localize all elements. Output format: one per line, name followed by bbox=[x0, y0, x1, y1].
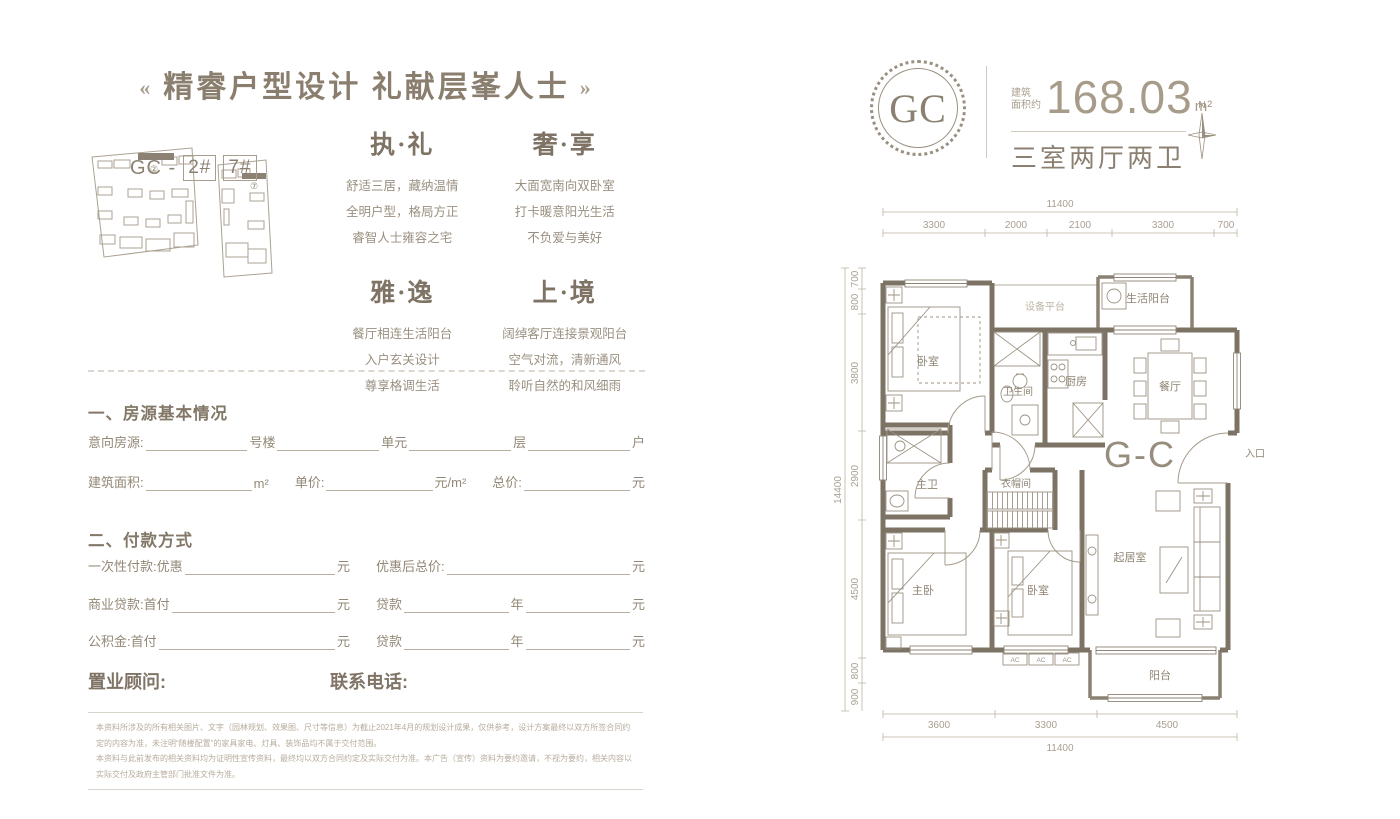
feature-line: 全明户型，格局方正 bbox=[321, 199, 484, 225]
room-label-kitchen: 厨房 bbox=[1065, 375, 1087, 388]
dim-left-total: 14400 bbox=[833, 476, 844, 504]
room-label-bedroom-bottom: 卧室 bbox=[1027, 583, 1049, 597]
layout-text: 三室两厅两卫 bbox=[1011, 138, 1185, 175]
payment-row-3: 公积金:首付元 贷款年元 bbox=[88, 631, 645, 650]
field-unit: 元/m² bbox=[435, 472, 467, 491]
field-label: 意向房源: bbox=[88, 432, 144, 451]
feature-grid: 执·礼 舒适三居，藏纳温情 全明户型，格局方正 睿智人士雍容之宅 奢·享 大面宽… bbox=[321, 125, 646, 399]
feature-title: 奢·享 bbox=[484, 125, 647, 161]
blank-field bbox=[159, 634, 335, 650]
disclaimer-line: 本资料所涉及的所有相关图片、文字（园林规划、效果图、尺寸等信息）为截止2021年… bbox=[96, 720, 635, 751]
feature-line: 聆听自然的和风细雨 bbox=[484, 373, 647, 399]
dim: 2900 bbox=[850, 464, 861, 487]
feature-title: 上·境 bbox=[484, 273, 647, 309]
dim-top-total: 11400 bbox=[1046, 199, 1074, 210]
blank-field bbox=[404, 597, 508, 613]
dim: 3600 bbox=[928, 720, 951, 731]
brochure-page: «精睿户型设计 礼献层峯人士» ② bbox=[0, 0, 1400, 819]
blank-field bbox=[528, 435, 630, 451]
field-label: 公积金:首付 bbox=[88, 631, 157, 650]
blank-field bbox=[526, 634, 630, 650]
dashed-separator bbox=[88, 370, 645, 372]
field-label: 贷款 bbox=[376, 631, 402, 650]
feature-yayi: 雅·逸 餐厅相连生活阳台 入户玄关设计 尊享格调生活 bbox=[321, 273, 484, 399]
consultant-label: 置业顾问: bbox=[88, 672, 166, 692]
compass-n-label: N bbox=[1182, 100, 1222, 111]
field-label: 贷款 bbox=[376, 594, 402, 613]
blank-field bbox=[277, 435, 379, 451]
room-label-closet: 衣帽间 bbox=[1001, 477, 1031, 490]
field-label: 优惠后总价: bbox=[376, 556, 445, 575]
siteplan2-tag: ⑦ bbox=[250, 181, 258, 191]
room-label-dining: 餐厅 bbox=[1159, 379, 1181, 393]
page-title-text: 精睿户型设计 礼献层峯人士 bbox=[163, 71, 570, 104]
doors bbox=[915, 396, 1228, 565]
dim: 3300 bbox=[1035, 720, 1058, 731]
room-label-equipment: 设备平台 bbox=[1025, 300, 1065, 313]
field-unit: 元 bbox=[337, 556, 350, 575]
area-underline bbox=[1011, 131, 1186, 132]
compass-icon bbox=[1182, 111, 1222, 161]
title-ornament-right-icon: » bbox=[570, 75, 604, 100]
field-unit: 元 bbox=[632, 556, 645, 575]
basic-info-heading: 一、房源基本情况 bbox=[88, 400, 228, 424]
dim: 3800 bbox=[850, 361, 861, 384]
area-label: 建筑 面积约 bbox=[1011, 88, 1041, 120]
field-unit: m² bbox=[254, 476, 269, 491]
feature-shangjing: 上·境 阔绰客厅连接景观阳台 空气对流，清新通风 聆听自然的和风细雨 bbox=[484, 273, 647, 399]
page-title: «精睿户型设计 礼献层峯人士» bbox=[88, 62, 645, 106]
blank-field bbox=[146, 475, 252, 491]
compass: N bbox=[1182, 100, 1222, 164]
blank-field bbox=[409, 435, 511, 451]
field-unit: 元 bbox=[632, 631, 645, 650]
field-unit: 元 bbox=[632, 472, 645, 491]
floorplan: 11400 3300 2000 2100 3300 700 14400 700 … bbox=[830, 195, 1290, 780]
feature-line: 睿智人士雍容之宅 bbox=[321, 225, 484, 251]
blank-field bbox=[526, 597, 630, 613]
entrance-label: 入口 bbox=[1245, 449, 1265, 460]
feature-line: 打卡暖意阳光生活 bbox=[484, 199, 647, 225]
ac-label: AC bbox=[1036, 657, 1045, 664]
feature-shexiang: 奢·享 大面宽南向双卧室 打卡暖意阳光生活 不负爱与美好 bbox=[484, 125, 647, 251]
blank-field bbox=[172, 597, 335, 613]
unit-badge: GC bbox=[870, 60, 966, 156]
field-label: 总价: bbox=[492, 472, 522, 491]
dim: 2100 bbox=[1069, 220, 1092, 231]
field-label: 商业贷款:首付 bbox=[88, 594, 170, 613]
basic-info-row-1: 意向房源: 号楼 单元 层 户 bbox=[88, 432, 645, 451]
ac-label: AC bbox=[1062, 657, 1071, 664]
unit-chip-2: 2# bbox=[183, 155, 216, 181]
blank-field bbox=[404, 634, 508, 650]
field-label: 单价: bbox=[295, 472, 325, 491]
payment-heading: 二、付款方式 bbox=[88, 527, 193, 551]
dim: 4500 bbox=[1156, 720, 1179, 731]
dim-bottom-total: 11400 bbox=[1046, 743, 1074, 754]
disclaimer-line: 本资料与此前发布的相关资料均为证明性宣传资料，最终均以双方合同约定及实际交付为准… bbox=[96, 751, 635, 782]
field-label: 单元 bbox=[381, 432, 407, 451]
unit-caption: GC - 2# 7# bbox=[130, 155, 257, 181]
payment-row-1: 一次性付款:优惠元 优惠后总价:元 bbox=[88, 556, 645, 575]
field-label: 一次性付款:优惠 bbox=[88, 556, 183, 575]
dim: 800 bbox=[850, 662, 861, 679]
feature-title: 雅·逸 bbox=[321, 273, 484, 309]
basic-info-row-2: 建筑面积: m² 单价: 元/m² 总价: 元 bbox=[88, 472, 645, 491]
blank-field bbox=[524, 475, 630, 491]
room-label-balcony: 阳台 bbox=[1149, 668, 1171, 682]
unit-badge-text: GC bbox=[878, 68, 958, 148]
blank-field bbox=[146, 435, 248, 451]
room-label-living: 起居室 bbox=[1114, 550, 1147, 564]
dim: 800 bbox=[850, 293, 861, 310]
dim: 2000 bbox=[1005, 220, 1028, 231]
dim: 3300 bbox=[923, 220, 946, 231]
area-value: 168.03 bbox=[1046, 74, 1193, 120]
payment-row-2: 商业贷款:首付元 贷款年元 bbox=[88, 594, 645, 613]
unit-code-label: G-C bbox=[1104, 434, 1176, 475]
field-label: 年 bbox=[511, 631, 524, 650]
ac-label: AC bbox=[1010, 657, 1019, 664]
feature-line: 舒适三居，藏纳温情 bbox=[321, 173, 484, 199]
blank-field bbox=[185, 559, 335, 575]
phone-label: 联系电话: bbox=[330, 668, 408, 694]
field-label: 号楼 bbox=[249, 432, 275, 451]
unit-caption-prefix: GC - bbox=[130, 157, 176, 180]
field-unit: 元 bbox=[337, 594, 350, 613]
field-unit: 元 bbox=[337, 631, 350, 650]
unit-chip-7: 7# bbox=[223, 155, 256, 181]
field-label: 户 bbox=[632, 432, 645, 451]
room-label-master-bedroom: 主卧 bbox=[912, 584, 934, 597]
header-divider bbox=[986, 66, 987, 158]
field-label: 年 bbox=[511, 594, 524, 613]
room-label-bedroom-top: 卧室 bbox=[917, 354, 939, 368]
disclaimer: 本资料所涉及的所有相关图片、文字（园林规划、效果图、尺寸等信息）为截止2021年… bbox=[88, 712, 643, 790]
dim: 900 bbox=[850, 688, 861, 705]
ac-labels: AC AC AC bbox=[1010, 657, 1071, 664]
right-panel: GC 建筑 面积约 168.03 m² 三室两厅两卫 N bbox=[830, 0, 1310, 819]
feature-line: 阔绰客厅连接景观阳台 bbox=[484, 321, 647, 347]
field-unit: 元 bbox=[632, 594, 645, 613]
field-label: 建筑面积: bbox=[88, 472, 144, 491]
field-label: 层 bbox=[513, 432, 526, 451]
room-label-life-balcony: 生活阳台 bbox=[1126, 291, 1170, 305]
feature-zhili: 执·礼 舒适三居，藏纳温情 全明户型，格局方正 睿智人士雍容之宅 bbox=[321, 125, 484, 251]
feature-title: 执·礼 bbox=[321, 125, 484, 161]
room-label-bathroom: 卫生间 bbox=[1003, 385, 1033, 398]
feature-line: 不负爱与美好 bbox=[484, 225, 647, 251]
feature-line: 大面宽南向双卧室 bbox=[484, 173, 647, 199]
title-ornament-left-icon: « bbox=[129, 75, 163, 100]
dim: 3300 bbox=[1152, 220, 1175, 231]
dim: 700 bbox=[850, 270, 861, 287]
dim: 700 bbox=[1218, 220, 1235, 231]
left-panel: «精睿户型设计 礼献层峯人士» ② bbox=[88, 0, 645, 819]
blank-field bbox=[326, 475, 432, 491]
feature-line: 尊享格调生活 bbox=[321, 373, 484, 399]
contact-row: 置业顾问: 联系电话: bbox=[88, 668, 645, 694]
blank-field bbox=[447, 559, 630, 575]
room-label-master-bath: 主卫 bbox=[916, 478, 938, 491]
dim: 4500 bbox=[850, 577, 861, 600]
feature-line: 餐厅相连生活阳台 bbox=[321, 321, 484, 347]
